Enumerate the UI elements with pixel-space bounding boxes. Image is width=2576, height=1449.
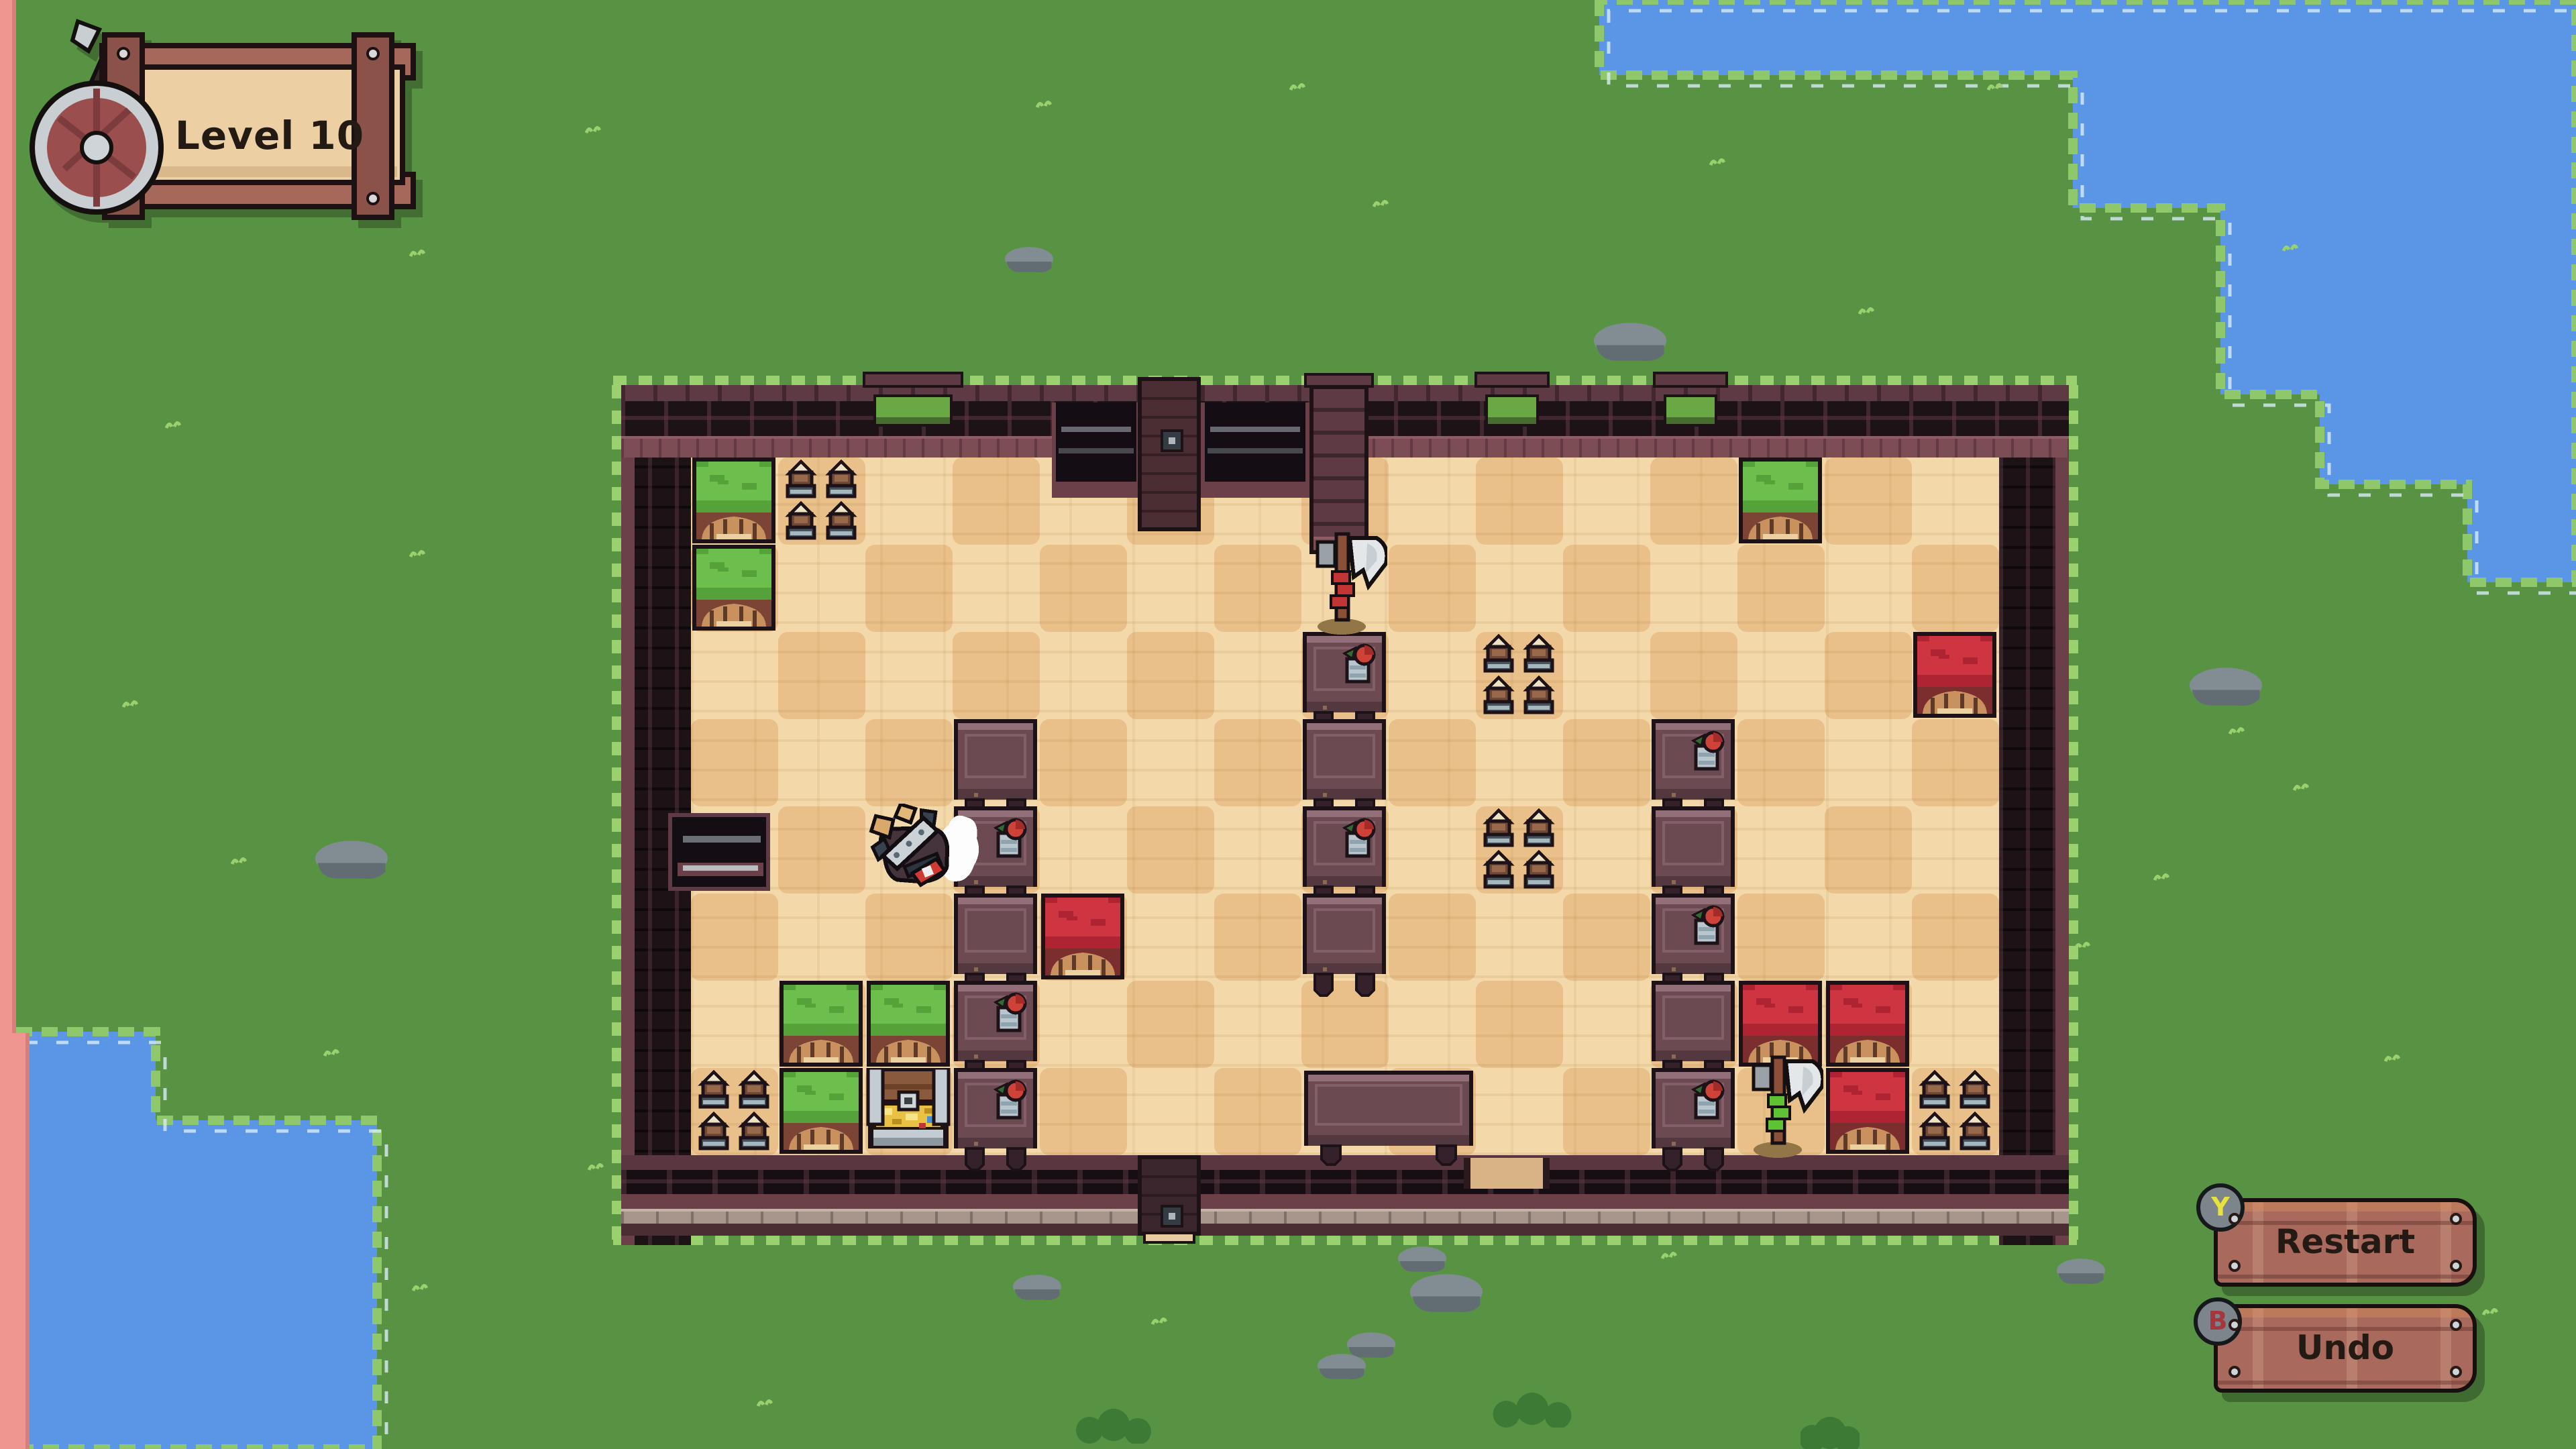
bush	[1489, 1393, 1575, 1428]
wall-outer-edge	[2055, 385, 2069, 1245]
grass-tuft	[121, 698, 140, 708]
wall-bottom-mid	[621, 1194, 2069, 1209]
grass-tuft	[586, 1161, 605, 1171]
nail-icon	[2229, 1366, 2241, 1378]
map-edge-strip-segment	[0, 1033, 30, 1449]
niche-plank	[1207, 448, 1303, 453]
table	[1301, 894, 1387, 998]
rock	[2186, 665, 2266, 710]
grass-tuft	[1660, 1249, 1678, 1260]
grass-tuft	[1708, 156, 1727, 166]
door-niche	[1201, 402, 1309, 498]
wall-bottom-base	[621, 1224, 2069, 1236]
nail-icon	[2229, 1260, 2241, 1272]
grass-tuft	[322, 1046, 341, 1057]
chair-group	[691, 1068, 777, 1154]
green-bed	[691, 545, 777, 631]
level-sign: Level 10	[19, 11, 435, 239]
green-axe	[1737, 1049, 1823, 1162]
grass-tuft	[2292, 781, 2310, 792]
wall-bottom-dark-band	[621, 1170, 2069, 1194]
window-green	[1485, 394, 1539, 427]
grass-tuft	[164, 419, 182, 429]
niche-base-stripe	[683, 865, 758, 871]
left-door-niche	[668, 813, 770, 891]
level-label: Level 10	[131, 113, 408, 158]
window-roof-cap	[1653, 372, 1728, 388]
grass-tuft	[584, 123, 602, 134]
wall-right	[1999, 385, 2069, 1245]
rock	[2054, 1257, 2108, 1287]
wall-bottom-board	[621, 1209, 2069, 1224]
grass-tuft	[1288, 80, 1307, 91]
window-green	[873, 394, 953, 427]
rock	[1395, 1245, 1449, 1275]
rock	[1010, 1273, 1064, 1303]
grass-tuft	[2281, 241, 2300, 252]
grass-tuft	[2481, 1305, 2500, 1316]
bench-table	[1303, 1071, 1474, 1170]
rock	[311, 839, 392, 883]
grass-tuft	[1371, 197, 1390, 208]
bottom-door	[1138, 1155, 1201, 1236]
niche-plank	[1061, 427, 1131, 432]
grass-tuft	[408, 247, 427, 258]
undo-button[interactable]: B Undo	[2214, 1304, 2477, 1393]
wall-grass-fringe	[2068, 385, 2078, 1245]
bottom-door-step	[1143, 1232, 1195, 1244]
red-axe	[1301, 526, 1387, 639]
rock	[1590, 321, 1670, 365]
grass-tuft	[229, 855, 248, 865]
restart-label: Restart	[2218, 1222, 2473, 1261]
chair-group	[1476, 632, 1562, 718]
wall-grass-fringe	[613, 1234, 2077, 1245]
chair-group	[1476, 806, 1562, 892]
window-green	[1664, 394, 1717, 427]
green-bed	[778, 1068, 864, 1154]
wall-outer-edge	[621, 385, 635, 1245]
green-bed	[778, 981, 864, 1067]
player-viking	[868, 804, 951, 892]
door-knob-icon	[1160, 1205, 1183, 1228]
chair-group	[778, 458, 864, 543]
table-with-mug	[953, 1068, 1038, 1173]
pillar-roof-cap	[1304, 373, 1374, 388]
grass-tuft	[1986, 80, 2004, 91]
green-bed	[865, 981, 951, 1067]
niche-plank	[1210, 427, 1300, 432]
grass-tuft	[408, 547, 427, 558]
rock	[1406, 1272, 1487, 1316]
green-bed	[691, 458, 777, 543]
window-roof-cap	[1474, 372, 1550, 388]
bottom-wall-opening	[1464, 1158, 1550, 1189]
bush	[1073, 1409, 1154, 1444]
chair-group	[1912, 1068, 1998, 1154]
niche-plank	[683, 836, 761, 843]
bush	[1801, 1417, 1860, 1449]
rock	[1315, 1352, 1368, 1382]
nail-icon	[2450, 1260, 2462, 1272]
grass-tuft	[755, 1397, 774, 1407]
niche-plank	[1059, 448, 1134, 453]
rock	[1002, 246, 1056, 275]
grass-tuft	[2152, 871, 2171, 881]
red-bed	[1825, 1068, 1911, 1154]
grass-tuft	[2227, 724, 2246, 735]
door-niche	[1052, 402, 1140, 498]
grass-tuft	[1034, 98, 1053, 109]
window-roof-cap	[863, 372, 963, 388]
green-bed	[1737, 458, 1823, 543]
grass-tuft	[411, 1281, 429, 1292]
game-screen: Level 10 Y Restart B Undo	[0, 0, 2576, 1449]
red-bed	[1040, 894, 1126, 979]
door-knob-icon	[1160, 429, 1183, 452]
table-with-mug	[1650, 1068, 1736, 1173]
grass-tuft	[2383, 1052, 2402, 1063]
map-edge-strip-segment	[0, 0, 16, 1033]
niche-ledge	[1056, 482, 1136, 494]
niche-ledge	[1205, 482, 1305, 494]
undo-label: Undo	[2218, 1328, 2473, 1367]
grass-tuft	[1857, 305, 1876, 315]
red-bed	[1912, 632, 1998, 718]
top-door	[1138, 377, 1201, 531]
treasure-chest	[865, 1068, 951, 1154]
grass-tuft	[1150, 1315, 1169, 1326]
nail-icon	[2450, 1366, 2462, 1378]
restart-button[interactable]: Y Restart	[2214, 1198, 2477, 1287]
red-bed	[1825, 981, 1911, 1067]
